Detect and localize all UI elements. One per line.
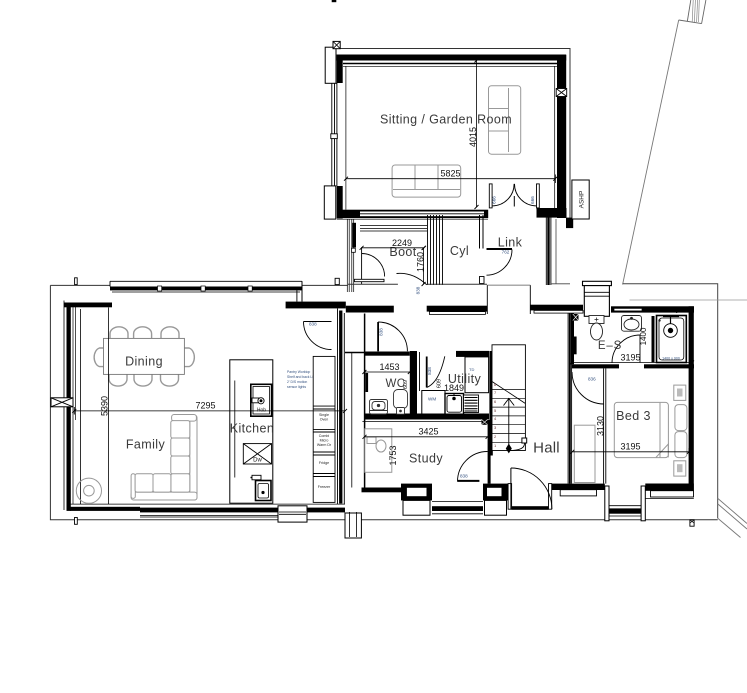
svg-text:2' D/S motion: 2' D/S motion: [287, 380, 307, 384]
svg-text:1400: 1400: [639, 327, 648, 345]
svg-text:Micro: Micro: [320, 439, 329, 443]
svg-text:WM: WM: [428, 397, 436, 402]
svg-text:2249: 2249: [392, 238, 412, 248]
svg-text:Pantry Worktop: Pantry Worktop: [287, 370, 310, 374]
svg-text:838: 838: [379, 328, 384, 336]
svg-text:838: 838: [416, 286, 421, 294]
svg-text:Oven: Oven: [320, 418, 329, 422]
svg-text:3130: 3130: [596, 416, 606, 436]
svg-text:Freezer: Freezer: [318, 485, 331, 489]
svg-text:Fridge: Fridge: [319, 461, 329, 465]
svg-text:Study: Study: [409, 452, 443, 466]
svg-text:762: 762: [502, 250, 510, 255]
svg-text:3425: 3425: [418, 427, 438, 437]
svg-text:Link: Link: [498, 236, 523, 250]
svg-text:4015: 4015: [468, 127, 478, 147]
svg-text:Sitting / Garden Room: Sitting / Garden Room: [380, 113, 512, 127]
svg-text:1849: 1849: [444, 383, 464, 393]
svg-text:1753: 1753: [388, 445, 398, 465]
svg-text:ASHP: ASHP: [579, 191, 586, 209]
svg-text:sensor lights: sensor lights: [287, 385, 306, 389]
svg-text:Dining: Dining: [125, 355, 163, 369]
svg-text:Combi: Combi: [319, 434, 330, 438]
svg-text:Family: Family: [126, 438, 166, 452]
svg-text:1760: 1760: [416, 252, 426, 272]
svg-text:838: 838: [460, 474, 468, 479]
svg-text:WC: WC: [386, 378, 406, 390]
svg-text:666: 666: [492, 196, 497, 204]
svg-text:Cyl: Cyl: [450, 244, 469, 258]
svg-text:836: 836: [588, 377, 596, 382]
svg-text:838: 838: [427, 367, 432, 375]
svg-text:7295: 7295: [195, 401, 215, 411]
svg-text:666: 666: [530, 196, 535, 204]
svg-text:Hall: Hall: [533, 440, 560, 457]
svg-text:609: 609: [437, 379, 443, 388]
svg-text:3195: 3195: [620, 353, 640, 363]
svg-text:Dw: Dw: [253, 458, 262, 464]
svg-text:Single: Single: [319, 413, 329, 417]
svg-text:Warm Dr: Warm Dr: [317, 443, 332, 447]
svg-text:Shelf and back Lid: Shelf and back Lid: [287, 375, 315, 379]
svg-text:Kitchen: Kitchen: [230, 422, 275, 436]
svg-text:Bed 3: Bed 3: [616, 409, 651, 423]
svg-text:3195: 3195: [620, 442, 640, 452]
svg-text:1453: 1453: [379, 362, 399, 372]
svg-text:5390: 5390: [100, 396, 110, 416]
svg-text:E–S: E–S: [598, 340, 622, 352]
svg-text:5825: 5825: [440, 169, 460, 179]
svg-text:1400 x 900: 1400 x 900: [662, 357, 680, 361]
svg-text:838: 838: [309, 322, 317, 327]
